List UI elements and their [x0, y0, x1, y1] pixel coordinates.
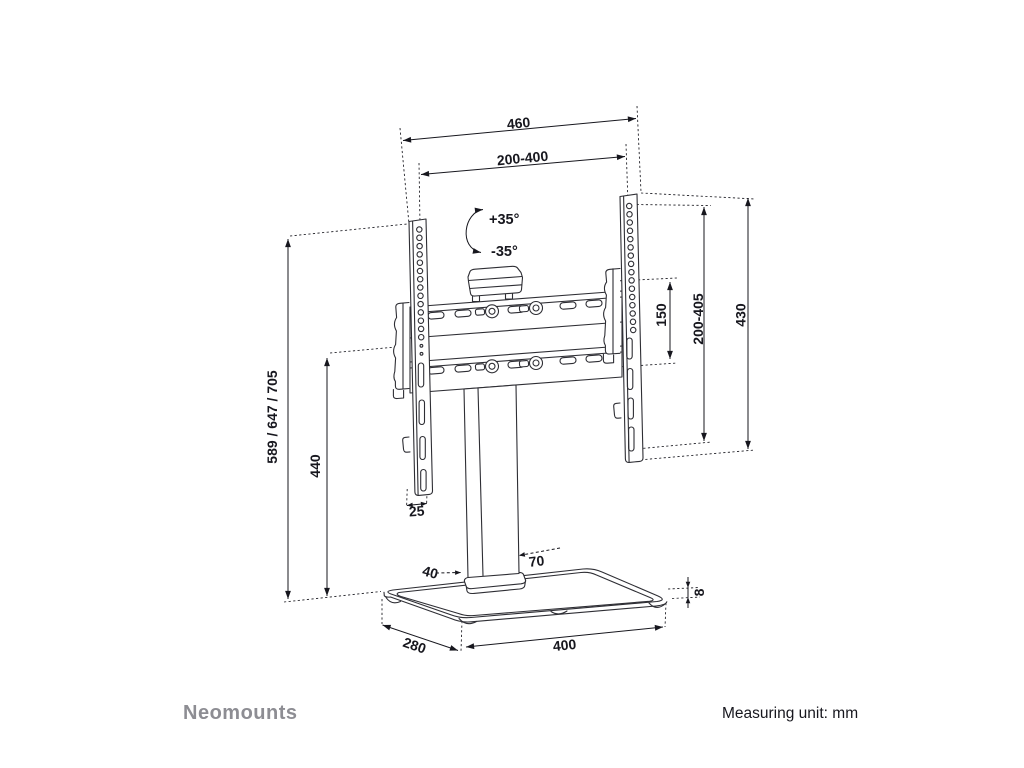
dimension-bracket-width: 25 [407, 502, 427, 519]
clamp-box [468, 266, 523, 301]
dim-label-swivel-right: +35° [489, 212, 520, 228]
diagram-page: 460 200-400 +35° -35° 150 200-405 430 58… [0, 0, 1024, 768]
left-bracket [393, 219, 432, 495]
dim-label-vesa-height: 200-405 [690, 293, 706, 345]
dim-label-bracket-width: 25 [408, 502, 425, 519]
dimension-base-width: 400 [466, 627, 663, 654]
dimension-vesa-height: 200-405 [690, 207, 706, 441]
right-bracket [603, 194, 643, 462]
dim-label-column-width: 70 [528, 552, 545, 570]
dim-label-swivel-left: -35° [491, 244, 518, 260]
dim-label-base-depth: 280 [401, 634, 428, 657]
dimension-column-width: 70 [519, 548, 560, 570]
swivel-annotation: +35° -35° [466, 210, 519, 261]
dim-label-vesa-width: 200-400 [496, 148, 549, 169]
dim-label-column-depth: 40 [421, 562, 440, 582]
dim-label-bracket-length: 430 [733, 303, 749, 327]
dimension-base-thickness: 8 [688, 577, 707, 608]
dimension-vesa-width: 200-400 [421, 148, 625, 175]
brand-logo: Neomounts [183, 702, 298, 724]
dimension-bracket-length: 430 [733, 198, 749, 449]
dimension-column-depth: 40 [421, 562, 461, 582]
tv-stand-dimension-diagram: 460 200-400 +35° -35° 150 200-405 430 58… [0, 0, 1024, 768]
dim-label-column-height: 440 [307, 454, 323, 478]
dimension-hook-spacing: 150 [653, 282, 670, 359]
dimension-base-depth: 280 [383, 625, 459, 657]
dim-label-base-thickness: 8 [691, 588, 707, 596]
rotation-arrow-icon [466, 210, 483, 253]
measuring-unit-note: Measuring unit: mm [722, 705, 858, 722]
dimension-overall-width: 460 [403, 114, 636, 141]
wall-plate [410, 291, 622, 393]
dim-label-overall-height: 589 / 647 / 705 [264, 370, 280, 464]
dim-label-base-width: 400 [552, 636, 577, 654]
column [464, 385, 519, 578]
dim-label-hook-spacing: 150 [653, 303, 669, 327]
dimension-overall-height: 589 / 647 / 705 [264, 239, 288, 599]
dimension-column-height: 440 [307, 358, 327, 596]
dim-label-overall-width: 460 [506, 114, 531, 132]
